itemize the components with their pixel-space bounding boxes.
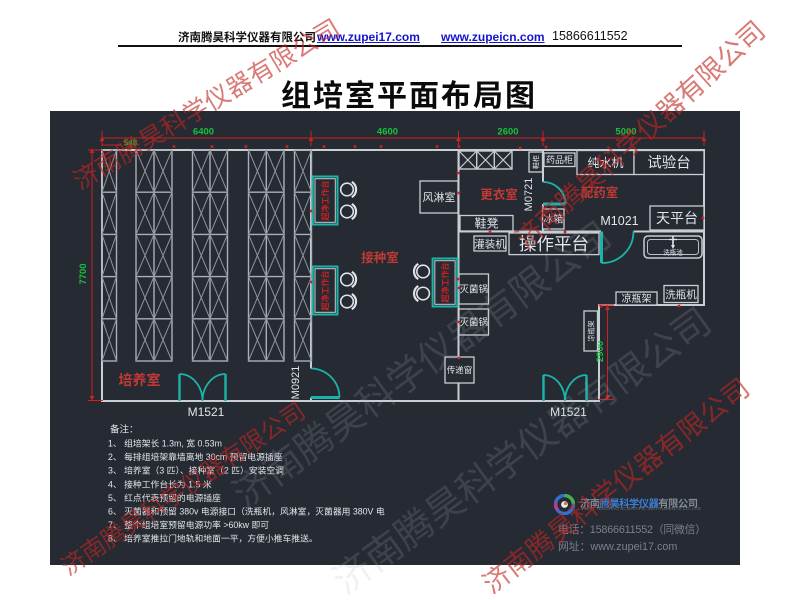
svg-text:超净工作台: 超净工作台 <box>320 271 330 311</box>
svg-text:超净工作台: 超净工作台 <box>440 263 450 303</box>
svg-text:接种室: 接种室 <box>361 250 399 265</box>
svg-text:灌装机: 灌装机 <box>474 237 506 250</box>
svg-text:2600: 2600 <box>497 127 518 138</box>
svg-text:洗瓶池: 洗瓶池 <box>663 248 683 257</box>
svg-text:试验台: 试验台 <box>647 155 691 172</box>
svg-text:风淋室: 风淋室 <box>423 190 456 204</box>
svg-text:4600: 4600 <box>377 127 398 138</box>
svg-text:凉瓶架: 凉瓶架 <box>586 321 595 342</box>
svg-text:备注：: 备注： <box>110 424 139 436</box>
svg-text:M1521: M1521 <box>188 405 225 419</box>
svg-text:药品柜: 药品柜 <box>546 154 573 165</box>
svg-text:鞋凳: 鞋凳 <box>474 216 498 231</box>
svg-text:更衣室: 更衣室 <box>480 187 518 202</box>
svg-text:培养室: 培养室 <box>119 372 161 388</box>
svg-text:凉瓶架: 凉瓶架 <box>622 292 652 305</box>
svg-text:天平台: 天平台 <box>656 210 698 226</box>
svg-text:鞋柜: 鞋柜 <box>531 155 540 169</box>
svg-text:1、 组培架长 1.3m, 宽 0.53m: 1、 组培架长 1.3m, 宽 0.53m <box>108 438 222 449</box>
svg-text:超净工作台: 超净工作台 <box>320 181 330 221</box>
svg-text:7700: 7700 <box>78 263 89 284</box>
svg-text:M1021: M1021 <box>600 214 638 228</box>
